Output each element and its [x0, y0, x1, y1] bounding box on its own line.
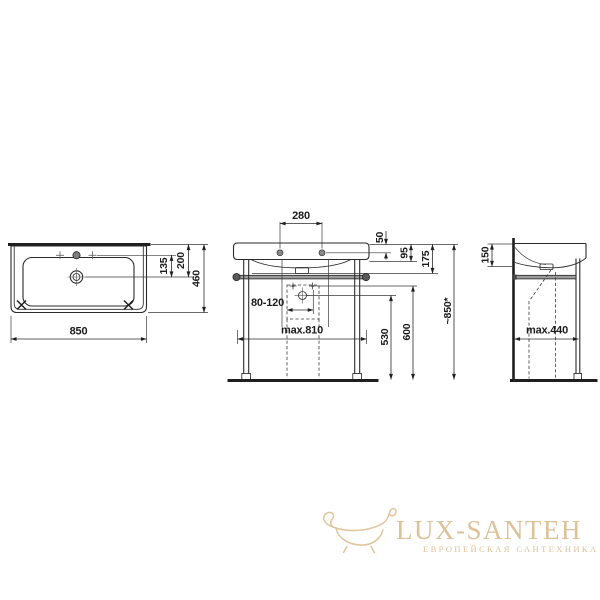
front-view: 280 — [228, 210, 459, 381]
dim-top-depth: 460 — [190, 270, 202, 287]
dim-max-width: max.810 — [281, 325, 323, 337]
dim-total-height: ~850* — [442, 297, 454, 325]
brand-logo-text: LUX-SANTEH — [396, 515, 596, 546]
dim-trap-height: 530 — [379, 328, 391, 345]
brand-tagline: ЕВРОПЕЙСКАЯ САНТЕХНИКА — [423, 544, 599, 554]
fixing-mark-right-icon — [124, 301, 133, 310]
dim-edge-front: 95 — [398, 247, 410, 259]
dim-edge-top: 50 — [374, 232, 386, 244]
dim-top-width: 850 — [70, 326, 88, 338]
dim-fixing-height: 600 — [401, 323, 413, 340]
overflow-box — [296, 268, 309, 274]
dim-side-rim: 150 — [479, 246, 491, 263]
dim-edge-total: 175 — [420, 250, 432, 267]
side-view: 150 max.440 — [479, 238, 597, 381]
fixing-mark-left-icon — [17, 301, 26, 310]
bathtub-icon — [324, 509, 396, 553]
wall-fixing-right-icon — [309, 283, 316, 290]
technical-drawing-page: 850 135 200 460 280 — [0, 0, 600, 600]
dim-side-depth: max.440 — [526, 325, 568, 337]
drain-icon — [68, 268, 86, 286]
deck-hole-left-icon — [277, 250, 283, 256]
towel-rail — [233, 274, 370, 281]
deck-hole-right-icon — [319, 250, 325, 256]
top-view: 850 135 200 460 — [8, 245, 208, 344]
rail-bracket-icon — [513, 275, 517, 280]
dim-drain-from-rear: 200 — [175, 252, 187, 269]
washbasin-drawing: 850 135 200 460 280 — [0, 0, 600, 600]
tap-hole-icon — [73, 252, 80, 259]
tap-hole-option-left-icon — [56, 251, 64, 259]
dim-tap-to-drain: 135 — [158, 257, 170, 274]
towel-rail-side — [515, 275, 577, 279]
tap-hole-option-right-icon — [89, 251, 97, 259]
dim-tap-spacing: 280 — [292, 210, 310, 222]
wall-fixing-left-icon — [290, 283, 297, 290]
dim-drain-range: 80-120 — [251, 297, 284, 309]
